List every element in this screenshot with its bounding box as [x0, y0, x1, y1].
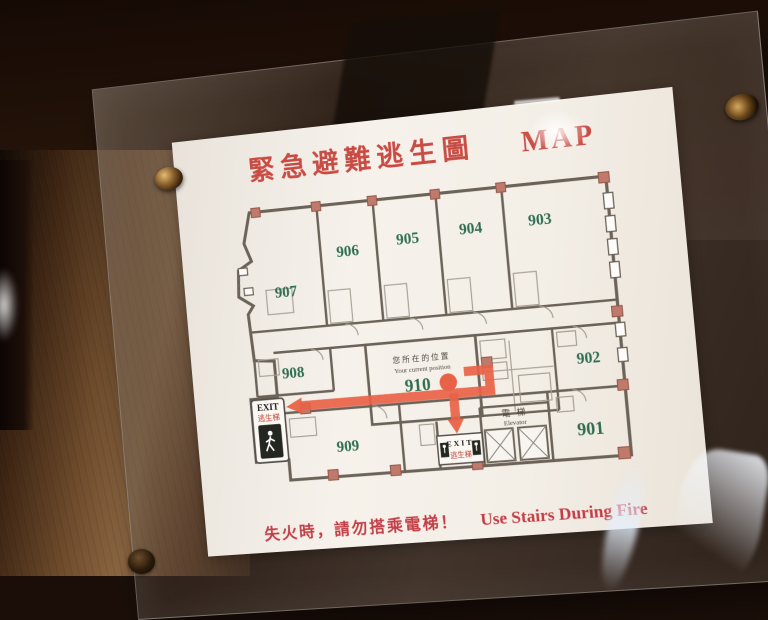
current-position-room: 您所在的位置 Your current position 910: [392, 350, 458, 397]
room-902-label: 902: [575, 350, 600, 369]
wood-dark-edge: [0, 160, 34, 430]
room-909-label: 909: [336, 438, 360, 456]
room-904-label: 904: [458, 220, 483, 239]
map-title-en: MAP: [520, 119, 597, 159]
route-arrow-down: [447, 418, 465, 434]
exit-left-zh: 逃生梯: [257, 412, 280, 424]
current-position-label-en: Your current position: [394, 363, 452, 375]
footer-warning-zh: 失火時，請勿搭乘電梯！: [263, 508, 459, 545]
floor-plan: 您所在的位置 Your current position 910 907 906…: [193, 149, 689, 499]
room-908-label: 908: [281, 365, 305, 383]
footer-warning-en: Use Stairs During Fire: [480, 499, 649, 531]
elevator-shaft-left: [484, 428, 515, 462]
screw-bottom-left: [128, 549, 155, 574]
room-910-label: 910: [403, 375, 431, 397]
elevator-label-zh: 電 梯: [500, 405, 527, 418]
current-position-label-zh: 您所在的位置: [392, 350, 451, 365]
room-907-label: 907: [274, 284, 298, 302]
exit-bottom-zh: 逃生梯: [449, 449, 471, 460]
room-903-label: 903: [527, 211, 552, 230]
evacuation-map-paper: 緊急避難逃生圖 MAP: [172, 87, 713, 557]
room-905-label: 905: [395, 231, 419, 250]
elevator-shaft-right: [517, 426, 548, 460]
exit-sign-bottom: EXIT 逃生梯: [436, 433, 484, 465]
sign-holder: 緊急避難逃生圖 MAP: [92, 11, 768, 620]
exit-sign-left: EXIT 逃生梯: [250, 398, 288, 463]
room-906-label: 906: [335, 243, 359, 261]
room-901-label: 901: [576, 418, 605, 440]
exit-left-en: EXIT: [256, 402, 279, 414]
